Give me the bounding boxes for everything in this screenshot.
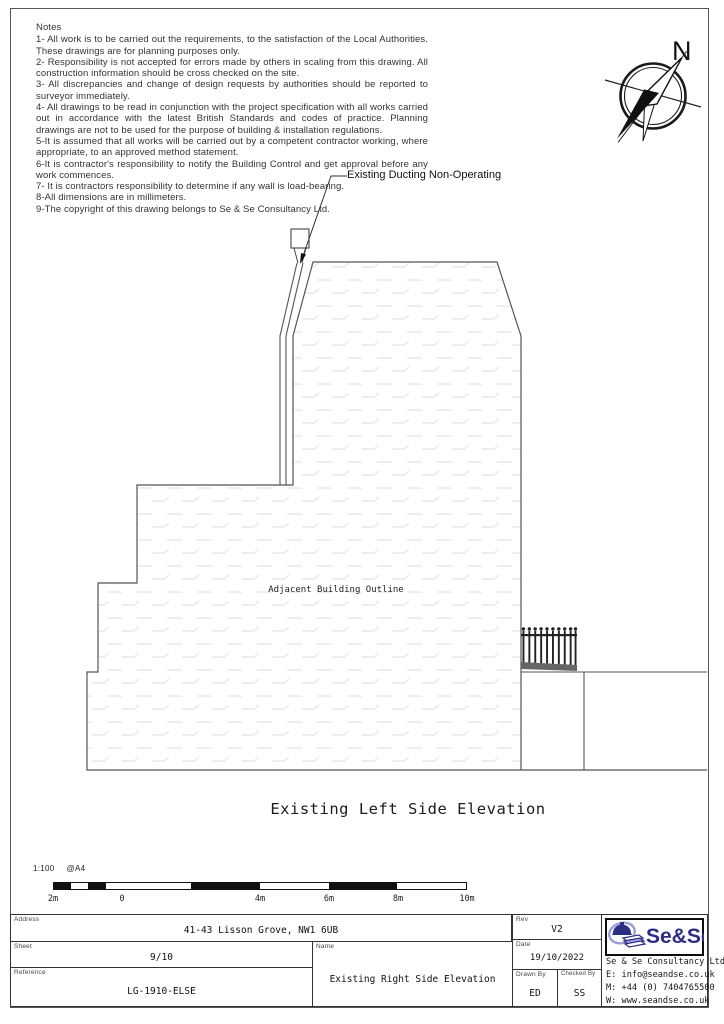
sheet-value: 9/10 bbox=[11, 952, 312, 963]
rev-label: Rev bbox=[516, 916, 528, 923]
scale-tick: 6m bbox=[324, 894, 334, 904]
titleblock-name-cell: Name Existing Right Side Elevation bbox=[312, 941, 513, 1007]
logo-papers bbox=[623, 935, 645, 947]
scale-tick: 8m bbox=[393, 894, 403, 904]
checked-by-label: Checked By bbox=[561, 971, 595, 977]
titleblock-checked-cell: Checked By SS bbox=[557, 969, 602, 1007]
adjacent-building-label: Adjacent Building Outline bbox=[266, 585, 406, 595]
scale-ratio: 1:100 bbox=[33, 864, 55, 873]
drawing-sheet: Notes 1- All work is to be carried out t… bbox=[0, 0, 724, 1024]
name-value: Existing Right Side Elevation bbox=[313, 974, 512, 985]
duct-leader-arrowhead bbox=[300, 253, 306, 264]
drawing-title: Existing Left Side Elevation bbox=[158, 800, 658, 818]
railing bbox=[521, 627, 577, 671]
date-label: Date bbox=[516, 941, 531, 948]
titleblock-drawn-cell: Drawn By ED bbox=[512, 969, 558, 1007]
railing-base bbox=[521, 662, 577, 671]
titleblock-rev-cell: Rev V2 bbox=[512, 914, 602, 940]
titleblock-reference-cell: Reference LG-1910-ELSE bbox=[10, 967, 313, 1007]
logo-text: Se&Se bbox=[646, 925, 704, 948]
reference-value: LG-1910-ELSE bbox=[11, 986, 312, 997]
checked-by-value: SS bbox=[558, 988, 601, 999]
scale-tick: 10m bbox=[459, 894, 474, 904]
company-web: W: www.seandse.co.uk bbox=[606, 996, 709, 1006]
building-outline bbox=[87, 262, 521, 770]
scale-bar-strip bbox=[53, 882, 467, 890]
titleblock-company-cell: Se&Se Se & Se Consultancy Ltd. E: info@s… bbox=[601, 914, 708, 1007]
paper-size: @A4 bbox=[67, 864, 86, 873]
name-label: Name bbox=[316, 943, 334, 950]
duct-leader-line bbox=[303, 176, 347, 256]
scale-tick: 2m bbox=[48, 894, 58, 904]
titleblock-date-cell: Date 19/10/2022 bbox=[512, 939, 602, 970]
drawn-by-label: Drawn By bbox=[516, 971, 546, 978]
elevation-drawing bbox=[0, 0, 724, 860]
company-mobile: M: +44 (0) 7404765500 bbox=[606, 983, 715, 993]
sheet-label: Sheet bbox=[14, 943, 32, 950]
titleblock-address-cell: Address 41-43 Lisson Grove, NW1 6UB bbox=[10, 914, 512, 942]
company-logo: Se&Se bbox=[605, 918, 704, 956]
date-value: 19/10/2022 bbox=[513, 953, 601, 963]
address-label: Address bbox=[14, 916, 39, 923]
rev-value: V2 bbox=[513, 924, 601, 935]
company-name: Se & Se Consultancy Ltd. bbox=[606, 957, 724, 967]
company-email: E: info@seandse.co.uk bbox=[606, 970, 715, 980]
scale-tick: 0 bbox=[119, 894, 124, 904]
reference-label: Reference bbox=[14, 969, 46, 976]
titleblock-sheet-cell: Sheet 9/10 bbox=[10, 941, 313, 968]
scale-bar: 1:100@A4 2m 0 4m 6m 8m 10m bbox=[0, 860, 500, 912]
duct-annotation-label: Existing Ducting Non-Operating bbox=[347, 169, 501, 181]
address-value: 41-43 Lisson Grove, NW1 6UB bbox=[11, 925, 511, 936]
drawn-by-value: ED bbox=[513, 988, 557, 999]
scale-caption: 1:100@A4 bbox=[33, 864, 85, 873]
scale-tick: 4m bbox=[255, 894, 265, 904]
